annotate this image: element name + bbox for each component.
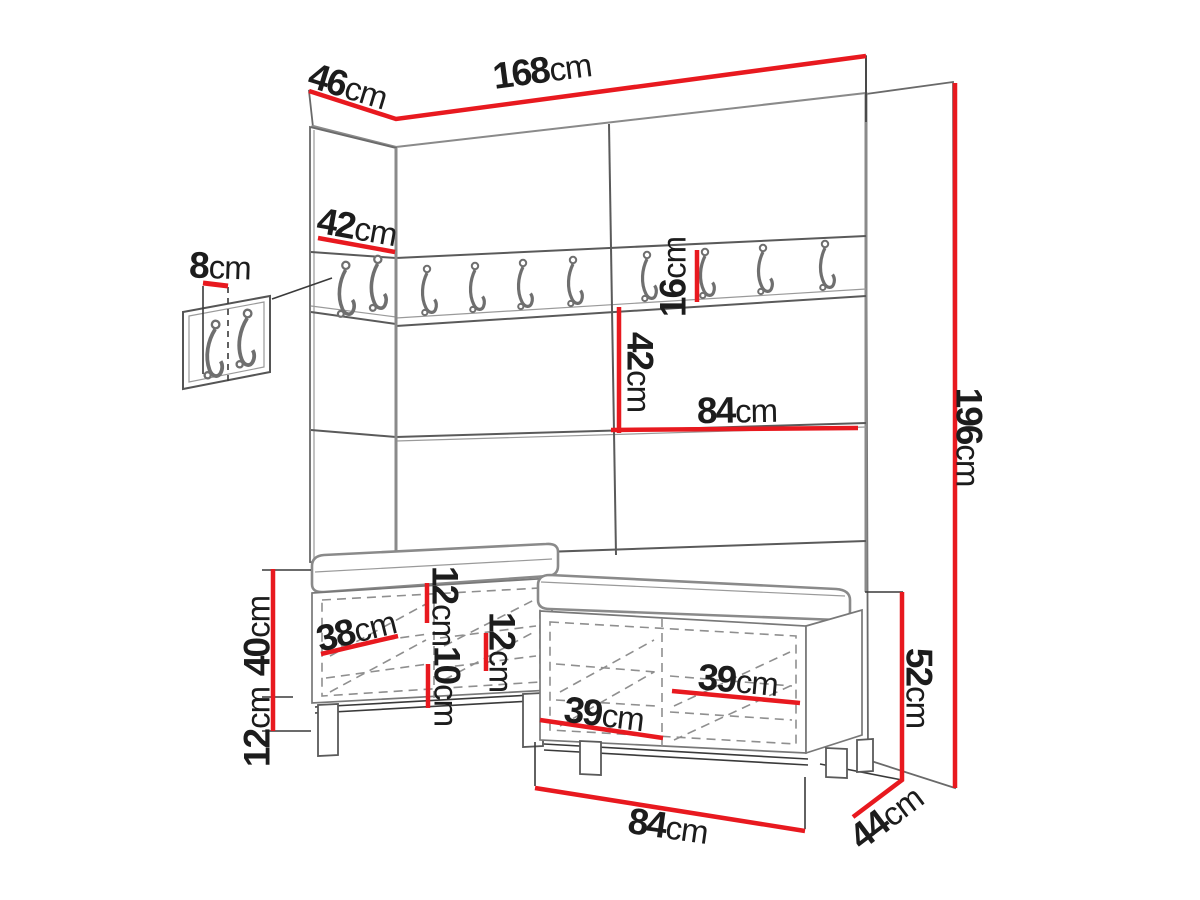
dim-value: 16 xyxy=(653,280,694,317)
dim-label-bench-total-height: 52cm xyxy=(901,648,938,728)
dim-label-panel-half-width: 84cm xyxy=(697,391,778,429)
dim-unit: cm xyxy=(656,237,693,279)
dim-unit: cm xyxy=(547,46,593,88)
dim-value: 39 xyxy=(696,656,737,700)
dim-unit: cm xyxy=(428,684,465,726)
dim-unit: cm xyxy=(240,687,277,729)
dim-value: 84 xyxy=(697,390,735,432)
dim-value: 12 xyxy=(482,612,523,649)
dim-label-inner-shelf-height: 12cm xyxy=(484,612,521,692)
dim-unit: cm xyxy=(621,370,658,412)
dim-label-total-height: 196cm xyxy=(951,388,988,487)
dim-unit: cm xyxy=(734,662,779,703)
dim-value: 42 xyxy=(314,200,358,247)
dim-value: 42 xyxy=(620,332,661,369)
dim-label-cabinet-leg-height: 12cm xyxy=(239,687,276,767)
dim-unit: cm xyxy=(352,209,400,253)
dim-label-right-compartment-width: 39cm xyxy=(696,658,779,702)
dim-value: 10 xyxy=(427,646,468,683)
dim-unit: cm xyxy=(240,596,277,638)
dim-unit: cm xyxy=(900,686,937,728)
dim-unit: cm xyxy=(483,650,520,692)
dim-value: 40 xyxy=(237,639,278,676)
dim-unit: cm xyxy=(663,808,710,850)
dim-label-wall-hook-depth: 8cm xyxy=(189,246,252,285)
dimension-diagram: 46cm 168cm 196cm 42cm 8cm 16cm 42cm 84cm… xyxy=(0,0,1200,900)
dim-label-panel-section-height: 42cm xyxy=(622,332,659,412)
side-return-panel xyxy=(310,127,396,570)
dim-label-seat-gap-height: 10cm xyxy=(429,646,466,726)
dim-label-seat-cushion-height: 12cm xyxy=(427,566,464,646)
dim-unit: cm xyxy=(208,248,251,286)
dim-value: 196 xyxy=(949,388,990,444)
dim-unit: cm xyxy=(950,444,987,486)
dim-unit: cm xyxy=(426,604,463,646)
dim-value: 84 xyxy=(625,800,668,846)
dim-value: 39 xyxy=(562,689,604,734)
dim-label-cabinet-body-height: 40cm xyxy=(239,596,276,676)
dim-unit: cm xyxy=(600,696,646,738)
dim-value: 168 xyxy=(490,49,551,97)
dim-value: 8 xyxy=(189,244,209,286)
dim-label-hook-rail-height: 16cm xyxy=(655,237,692,317)
furniture-line-drawing xyxy=(0,0,1200,900)
dim-value: 52 xyxy=(899,648,940,685)
dim-unit: cm xyxy=(735,392,778,430)
dim-value: 12 xyxy=(237,730,278,767)
dim-value: 12 xyxy=(425,566,466,603)
